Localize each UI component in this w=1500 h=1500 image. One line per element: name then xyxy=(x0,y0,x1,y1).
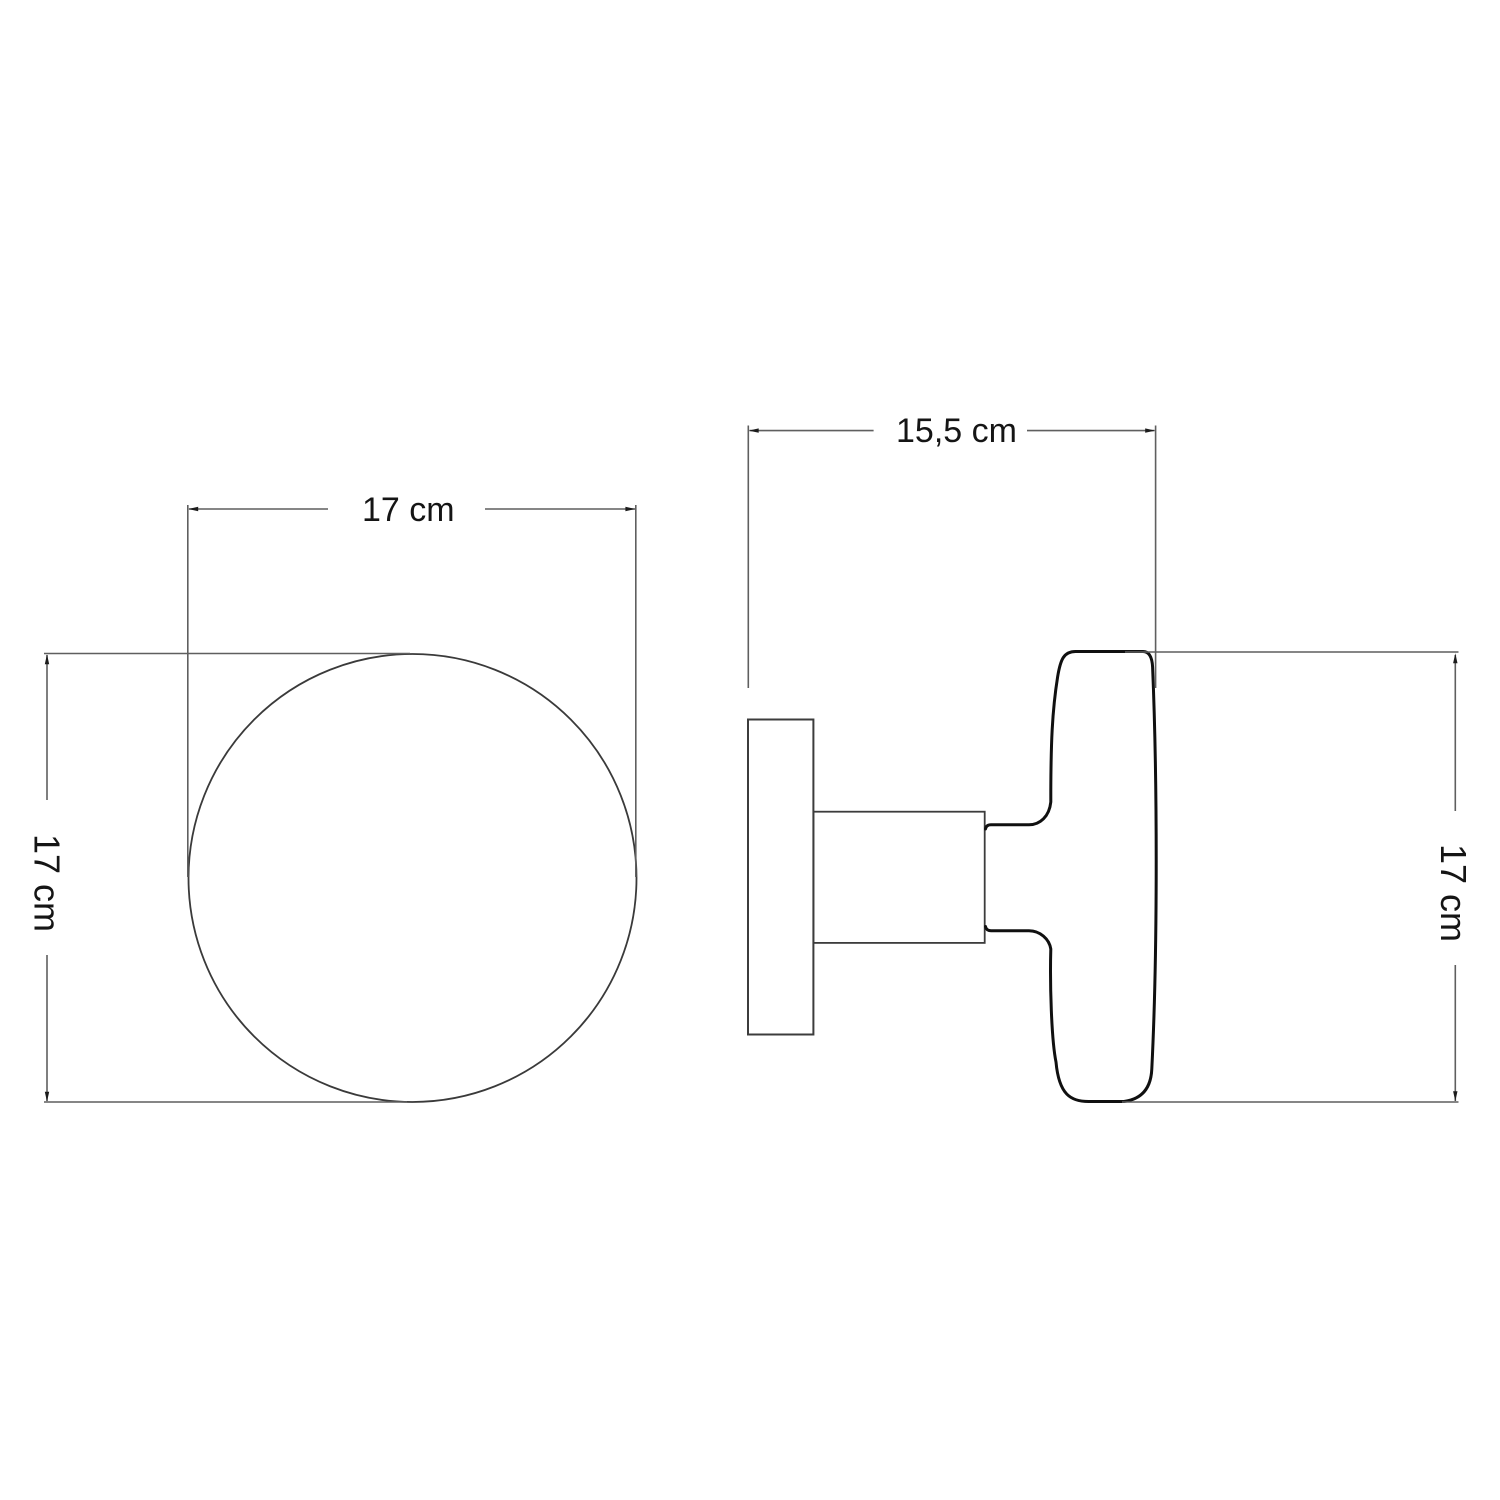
svg-text:15,5 cm: 15,5 cm xyxy=(896,412,1017,450)
svg-text:17 cm: 17 cm xyxy=(362,491,455,529)
svg-text:17 cm: 17 cm xyxy=(1433,844,1474,942)
svg-text:17 cm: 17 cm xyxy=(27,834,68,932)
